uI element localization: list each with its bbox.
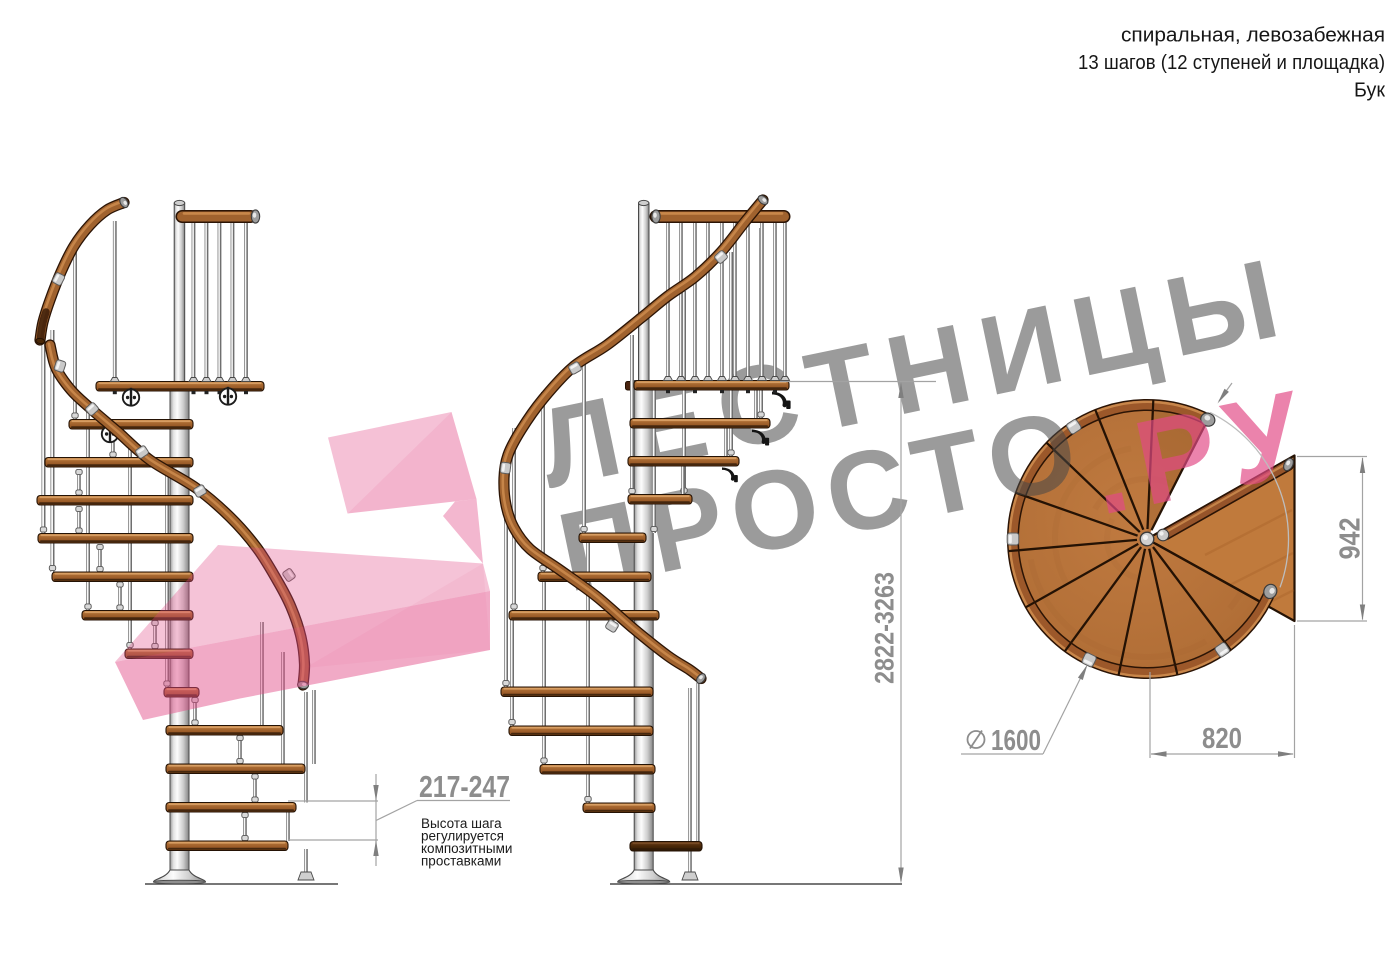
- svg-text:Бук: Бук: [1354, 79, 1386, 102]
- svg-text:217-247: 217-247: [419, 769, 510, 804]
- svg-text:2822-3263: 2822-3263: [870, 572, 900, 684]
- svg-text:820: 820: [1202, 723, 1242, 755]
- svg-text:942: 942: [1335, 518, 1367, 560]
- svg-text:спиральная, левозабежная: спиральная, левозабежная: [1121, 24, 1385, 47]
- svg-text:проставками: проставками: [421, 854, 501, 869]
- svg-text:13 шагов (12 ступеней и площад: 13 шагов (12 ступеней и площадка): [1078, 51, 1385, 74]
- svg-text:1600: 1600: [991, 725, 1041, 757]
